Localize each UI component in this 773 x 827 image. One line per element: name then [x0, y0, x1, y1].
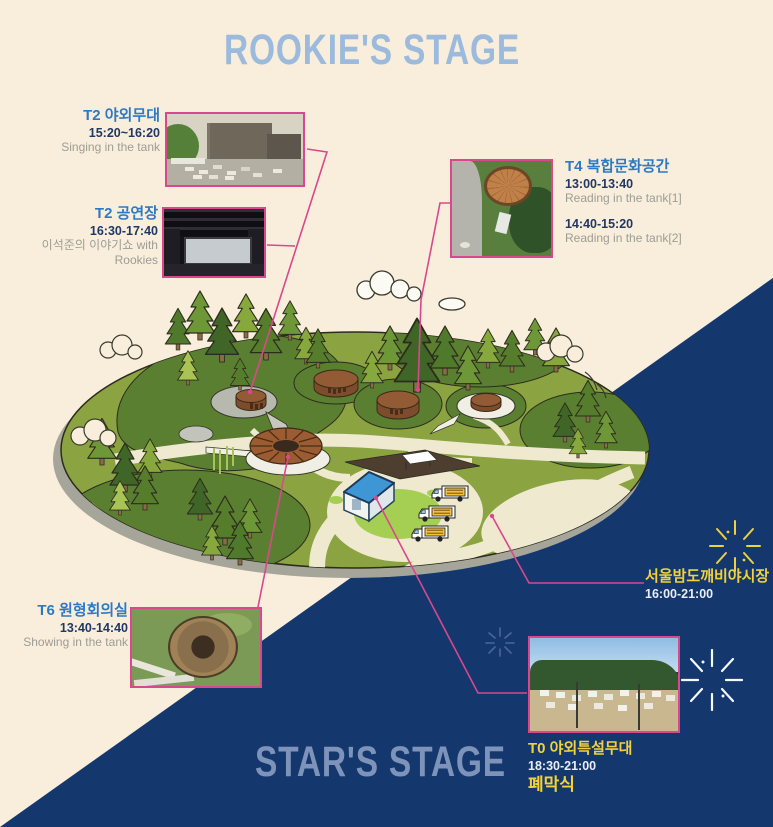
event-time: 18:30-21:00 [528, 759, 632, 774]
event-name: T2 야외무대 [61, 107, 160, 125]
connector-dots [248, 388, 494, 518]
event-name: T2 공연장 [0, 205, 158, 223]
photo-fence [171, 158, 205, 164]
festival-map-poster: { "titles": { "top": "ROOKIE'S STAGE", "… [0, 0, 773, 827]
event-desc: Showing in the tank [23, 635, 128, 649]
photo-t2-outdoor-stage [165, 112, 305, 187]
oil-tank-t2 [211, 386, 294, 438]
cloud-icon [71, 271, 606, 446]
event-time: 13:00-13:40 [565, 177, 682, 192]
event-name: 서울밤도깨비야시장 [645, 568, 769, 586]
canopy [402, 451, 437, 470]
oil-tank-b [377, 391, 419, 419]
event-desc: 폐막식 [528, 775, 632, 795]
photo-plaza-ground [530, 690, 680, 733]
oil-tank-c [430, 393, 515, 434]
event-name: T4 복합문화공간 [565, 158, 682, 176]
photo-t6-round-meeting-hall [130, 607, 262, 688]
event-desc: 이석준의 이야기쇼 with Rookies [0, 238, 158, 266]
photo-treeline [530, 660, 680, 692]
event-label-t2-outdoor: T2 야외무대 15:20~16:20 Singing in the tank [61, 107, 160, 155]
photo-lamp-poles [576, 682, 578, 728]
event-name: T0 야외특설무대 [528, 740, 632, 758]
event-time: 15:20~16:20 [61, 126, 160, 141]
event-label-t6: T6 원형회의실 13:40-14:40 Showing in the tank [23, 602, 128, 650]
photo-ring-tank [168, 616, 238, 678]
pond [179, 426, 213, 442]
photo-stones [185, 167, 194, 171]
ring-tank-t6 [246, 428, 330, 475]
event-label-t4: T4 복합문화공간 13:00-13:40 Reading in the tan… [565, 158, 682, 246]
event-label-t2-hall: T2 공연장 16:30-17:40 이석준의 이야기쇼 with Rookie… [0, 205, 158, 267]
photo-tank-roof [484, 166, 532, 206]
photo-spots [460, 242, 470, 248]
page-title-stars-stage: STAR'S STAGE [255, 738, 506, 787]
pavilion-icon [344, 472, 394, 521]
plaza [345, 450, 480, 479]
event-time: 14:40-15:20 [565, 217, 682, 232]
event-name: T6 원형회의실 [23, 602, 128, 620]
event-desc: Reading in the tank[1] [565, 191, 682, 205]
photo-stage-screen [184, 237, 252, 265]
event-label-t0: T0 야외특설무대 18:30-21:00 폐막식 [528, 740, 632, 795]
event-time: 16:30-17:40 [0, 224, 158, 239]
event-label-night-market: 서울밤도깨비야시장 16:00-21:00 [645, 568, 769, 601]
event-desc: Reading in the tank[2] [565, 231, 682, 245]
event-time: 16:00-21:00 [645, 587, 769, 602]
grass-tufts [214, 446, 233, 474]
event-time: 13:40-14:40 [23, 621, 128, 636]
photo-t4-culture-space [450, 159, 553, 258]
photo-tents [540, 690, 549, 696]
oil-tank-a [314, 370, 358, 397]
event-desc: Singing in the tank [61, 140, 160, 154]
page-title-rookies-stage: ROOKIE'S STAGE [224, 26, 520, 75]
photo-t0-special-stage [528, 636, 680, 733]
photo-floor [164, 264, 266, 276]
photo-t2-performance-hall [162, 207, 266, 278]
